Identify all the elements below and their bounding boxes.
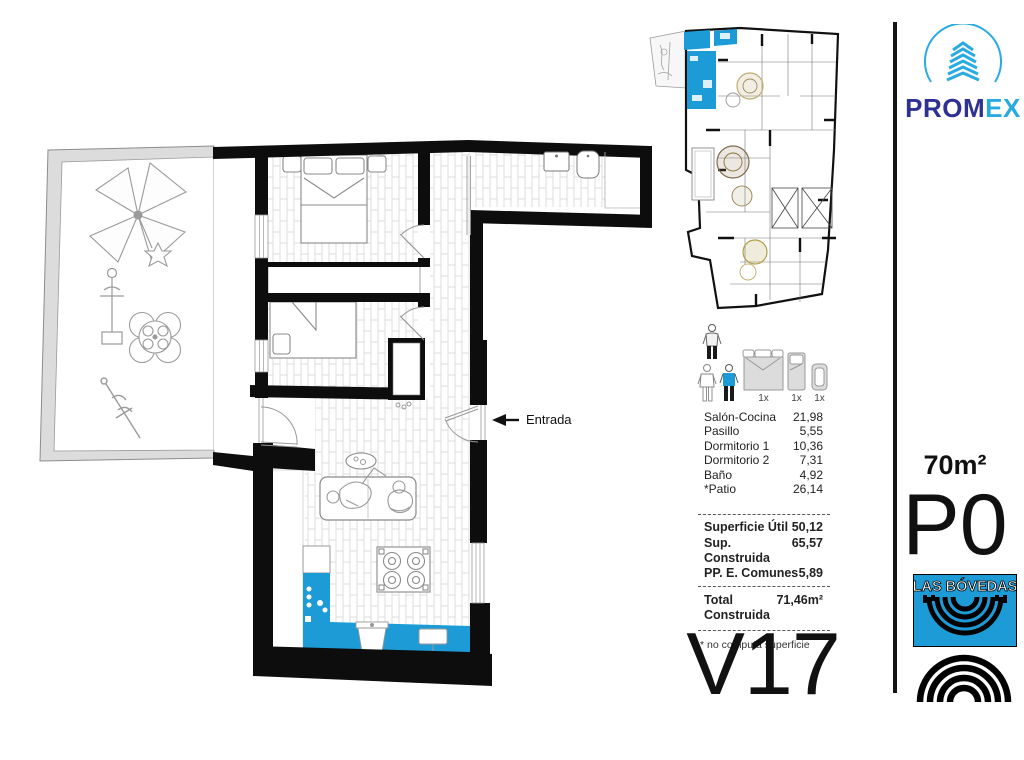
main-floor-plan: [0, 0, 680, 760]
kitchen-counter-white: [272, 470, 303, 648]
promex-logo-mark: [903, 24, 1023, 88]
wall-bath-bottom: [470, 210, 652, 228]
occupancy-legend: 1x 1x 1x: [688, 320, 848, 408]
crib-count: 1x: [814, 393, 825, 404]
promex-wordmark-primary: PROM: [905, 93, 985, 123]
fridge: [303, 546, 330, 573]
window-bed2: [255, 340, 268, 372]
closet: [393, 343, 420, 395]
shower: [605, 150, 643, 208]
single-bed: [270, 302, 356, 358]
promex-wordmark-accent: EX: [985, 93, 1021, 123]
wardrobe: [268, 266, 420, 295]
area-row: Pasillo5,55: [698, 424, 830, 438]
crib-icon: [812, 364, 827, 390]
floorplan-sheet: { "plan": { "entrance_label": "Entrada",…: [0, 0, 1024, 760]
summary-row: Superficie Útil50,12: [698, 520, 830, 535]
wall-living-left: [253, 443, 273, 655]
divider-dashed: [698, 586, 830, 587]
area-row: Baño4,92: [698, 468, 830, 482]
single-bed-count: 1x: [791, 393, 802, 404]
window-living: [472, 543, 484, 603]
promex-building-icon: [947, 43, 979, 80]
entrance-label: Entrada: [526, 412, 572, 427]
window-bed1: [255, 215, 268, 258]
single-bed-icon: [788, 353, 805, 390]
area-row: *Patio26,14: [698, 482, 830, 496]
promex-logo: PROMEX: [903, 24, 1023, 124]
arches-mark: [913, 645, 1015, 703]
keyplan-patio-sketch: [650, 31, 686, 88]
double-bed-icon: [743, 350, 783, 390]
person-icon-man-blue: [720, 365, 738, 402]
las-bovedas-arches: [929, 597, 1001, 633]
key-plan: [640, 15, 890, 315]
area-row: Dormitorio 110,36: [698, 439, 830, 453]
patio: [40, 146, 256, 461]
divider-dashed: [698, 514, 830, 515]
person-icon-woman: [698, 365, 716, 402]
double-bed-count: 1x: [758, 393, 769, 404]
unit-code: V17: [678, 620, 848, 708]
las-bovedas-logo: LAS BÓVEDAS: [913, 574, 1017, 647]
area-row: Dormitorio 27,31: [698, 453, 830, 467]
summary-row: PP. E. Comunes5,89: [698, 566, 830, 581]
unit-floor: P0: [895, 482, 1015, 568]
dining-table: [377, 547, 430, 592]
las-bovedas-logo-art: LAS BÓVEDAS: [914, 575, 1016, 646]
wall-bottom: [253, 646, 492, 686]
person-icon-man: [703, 325, 721, 360]
area-row: Salón-Cocina21,98: [698, 410, 830, 424]
entrance-arrow: [492, 414, 519, 426]
vertical-divider: [893, 22, 897, 693]
las-bovedas-text: LAS BÓVEDAS: [914, 577, 1016, 595]
summary-row: Sup. Construida65,57: [698, 536, 830, 566]
promex-wordmark: PROMEX: [903, 93, 1023, 124]
kitchen-sink: [356, 622, 388, 652]
